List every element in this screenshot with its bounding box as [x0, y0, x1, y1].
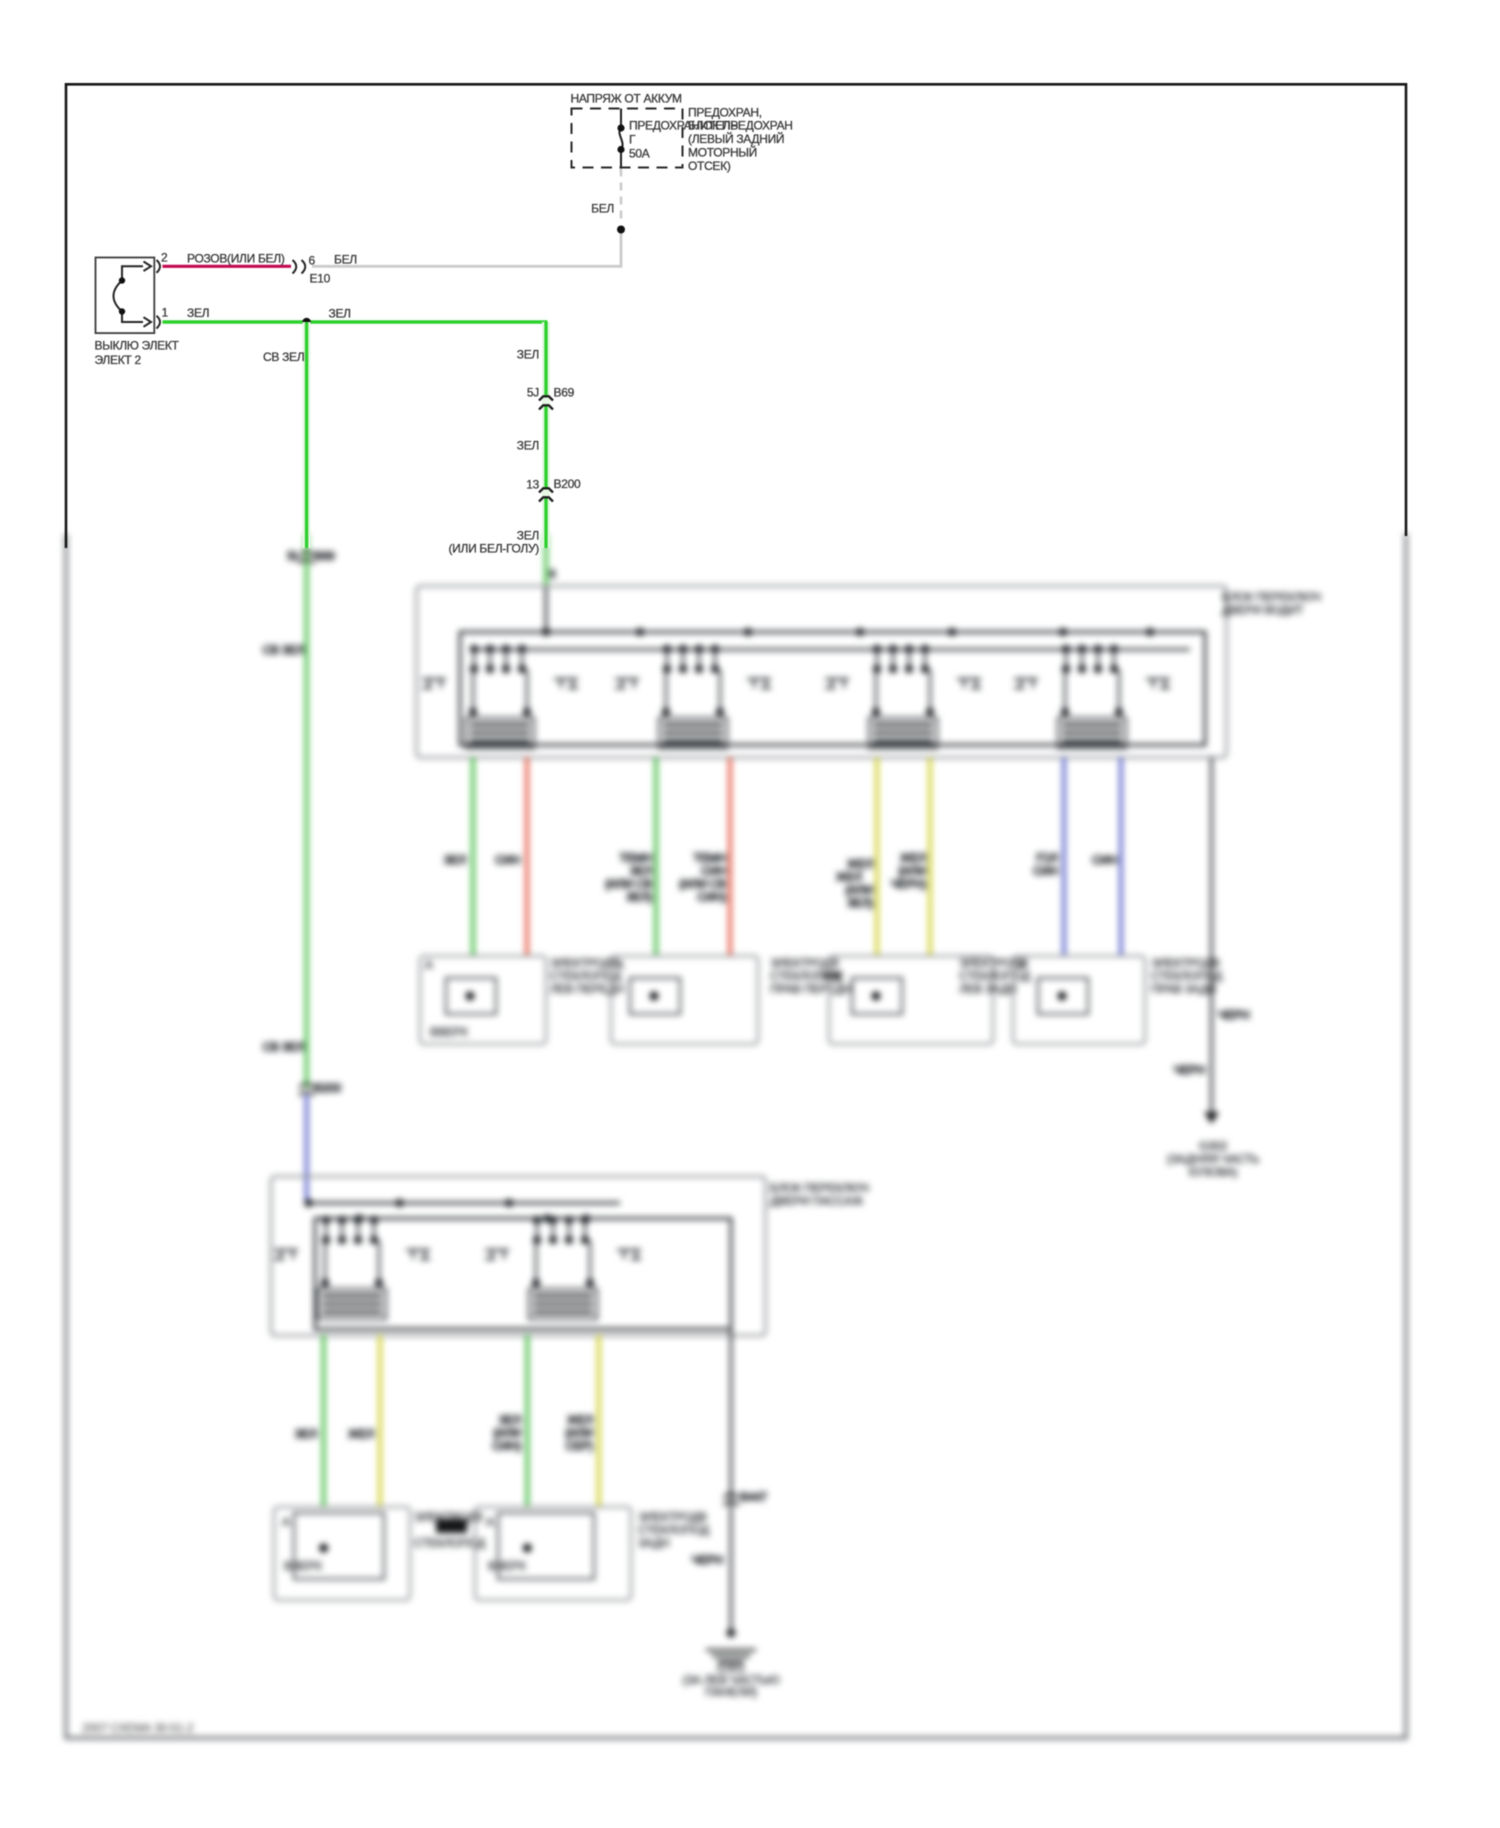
- svg-text:ЗЕЛ: ЗЕЛ: [187, 306, 209, 320]
- svg-text:БЛОК ПРЕДОХРАН: БЛОК ПРЕДОХРАН: [688, 119, 793, 133]
- svg-text:СВ ЗЕЛ: СВ ЗЕЛ: [263, 350, 304, 364]
- svg-text:БЕЛ: БЕЛ: [591, 202, 614, 216]
- svg-text:ВЫКЛЮ ЭЛЕКТ: ВЫКЛЮ ЭЛЕКТ: [95, 339, 180, 353]
- svg-text:РОЗОВ(ИЛИ БЕЛ): РОЗОВ(ИЛИ БЕЛ): [187, 252, 285, 266]
- svg-text:B69: B69: [554, 386, 575, 400]
- svg-text:БЕЛ: БЕЛ: [334, 253, 357, 267]
- svg-text:2: 2: [161, 251, 168, 265]
- svg-text:НАПРЯЖ ОТ АККУМ: НАПРЯЖ ОТ АККУМ: [571, 92, 683, 106]
- svg-text:ЭЛЕКТ 2: ЭЛЕКТ 2: [95, 353, 142, 367]
- svg-text:1: 1: [162, 306, 169, 320]
- svg-text:6: 6: [309, 254, 316, 268]
- svg-text:(ЛЕВЫЙ ЗАДНИЙ: (ЛЕВЫЙ ЗАДНИЙ: [688, 131, 784, 146]
- svg-text:ЗЕЛ: ЗЕЛ: [329, 307, 351, 321]
- svg-text:МОТОРНЫЙ: МОТОРНЫЙ: [688, 145, 757, 160]
- svg-text:Г: Г: [629, 133, 636, 147]
- svg-text:13: 13: [526, 478, 539, 492]
- svg-text:B200: B200: [554, 477, 581, 491]
- svg-text:ЗЕЛ: ЗЕЛ: [517, 529, 539, 543]
- svg-text:50А: 50А: [629, 147, 650, 161]
- svg-text:5J: 5J: [527, 386, 539, 400]
- svg-text:ОТСЕК): ОТСЕК): [688, 159, 731, 173]
- svg-text:(ИЛИ БЕЛ-ГОЛУ): (ИЛИ БЕЛ-ГОЛУ): [448, 542, 539, 556]
- svg-text:ЗЕЛ: ЗЕЛ: [517, 348, 539, 362]
- svg-text:ЗЕЛ: ЗЕЛ: [517, 439, 539, 453]
- svg-text:E10: E10: [310, 272, 331, 286]
- svg-text:ПРЕДОХРАН,: ПРЕДОХРАН,: [688, 106, 762, 120]
